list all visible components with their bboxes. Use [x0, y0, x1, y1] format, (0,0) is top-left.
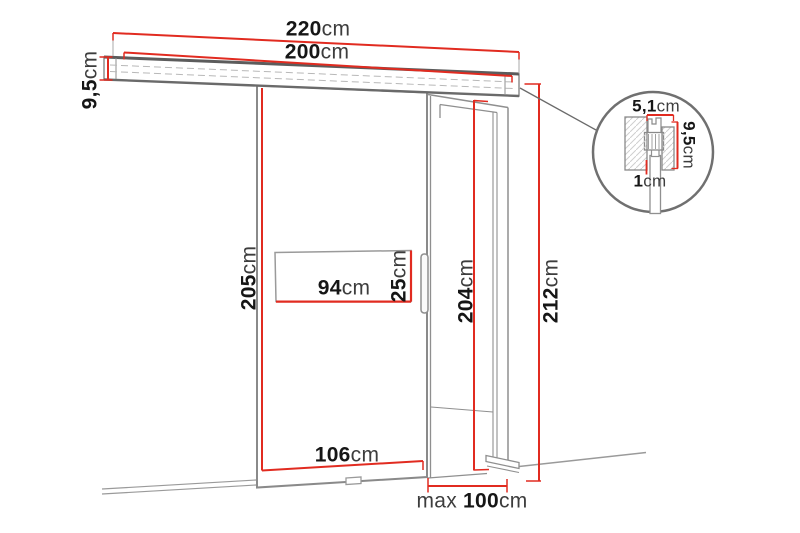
dim-detail-hanger-width-label: 5,1cm	[632, 98, 680, 115]
detail-wall-block-left	[625, 117, 647, 170]
sliding-door-dimension-diagram: 220cm 200cm 9,5cm 205cm 94cm 25cm 204cm …	[0, 0, 800, 533]
dim-rail-total-width-label: 220cm	[286, 19, 351, 40]
detail-wall-block-right	[662, 127, 674, 170]
dim-detail-panel-thickness-label: 1cm	[633, 173, 666, 190]
floor-line-left	[102, 480, 256, 494]
dim-rail-height-label: 9,5cm	[80, 51, 101, 110]
dim-rail-inner-width-label: 200cm	[285, 42, 350, 63]
dim-max-opening-width-label: max100cm	[416, 491, 527, 512]
dim-door-height-label: 205cm	[239, 246, 260, 311]
dim-window-width-label: 94cm	[318, 278, 371, 299]
dim-opening-height-label: 204cm	[456, 259, 477, 324]
detail-callout-line	[520, 88, 596, 130]
door-handle	[421, 254, 428, 313]
floor-guide-foot	[346, 477, 361, 485]
dim-detail-hanger-height-label: 9,5cm	[681, 121, 698, 169]
dim-total-height-label: 212cm	[541, 259, 562, 324]
dim-window-height-label: 25cm	[389, 250, 410, 303]
dim-door-width-label: 106cm	[315, 445, 380, 466]
